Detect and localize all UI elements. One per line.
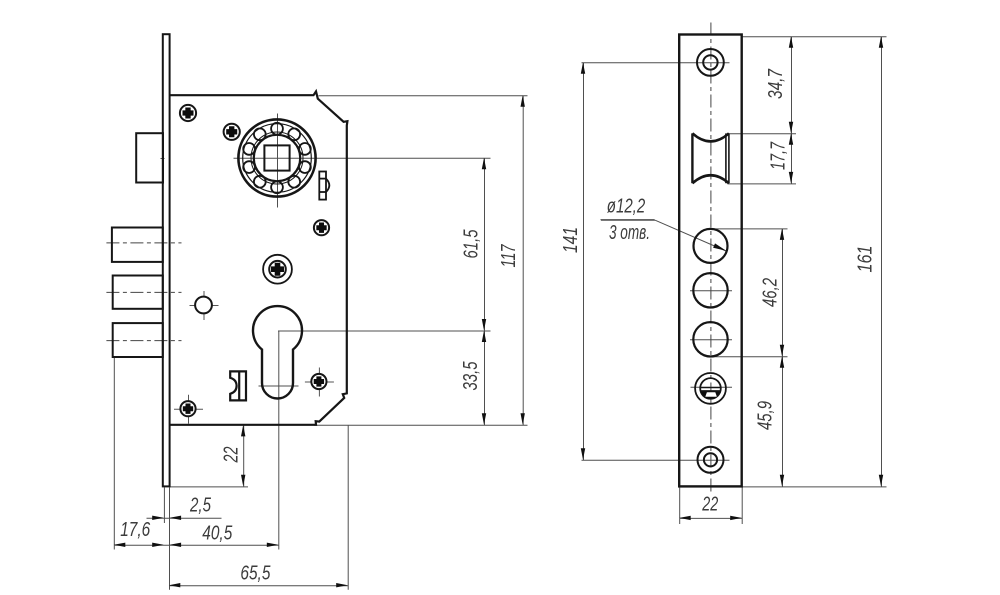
svg-text:34,7: 34,7 — [765, 68, 787, 99]
svg-text:46,2: 46,2 — [760, 278, 782, 307]
svg-text:161: 161 — [855, 246, 877, 273]
svg-text:22: 22 — [702, 494, 719, 516]
svg-text:22: 22 — [221, 447, 243, 464]
svg-text:2,5: 2,5 — [189, 495, 211, 517]
svg-text:ø12,2: ø12,2 — [607, 196, 646, 218]
svg-text:17,7: 17,7 — [768, 141, 790, 170]
svg-text:45,9: 45,9 — [755, 401, 777, 430]
svg-text:117: 117 — [498, 244, 520, 268]
svg-text:33,5: 33,5 — [460, 361, 482, 391]
svg-text:61,5: 61,5 — [460, 229, 482, 259]
svg-text:40,5: 40,5 — [202, 523, 233, 545]
svg-text:65,5: 65,5 — [240, 563, 271, 585]
svg-text:141: 141 — [560, 227, 582, 253]
svg-text:3 отв.: 3 отв. — [609, 222, 650, 244]
svg-text:17,6: 17,6 — [120, 519, 151, 541]
